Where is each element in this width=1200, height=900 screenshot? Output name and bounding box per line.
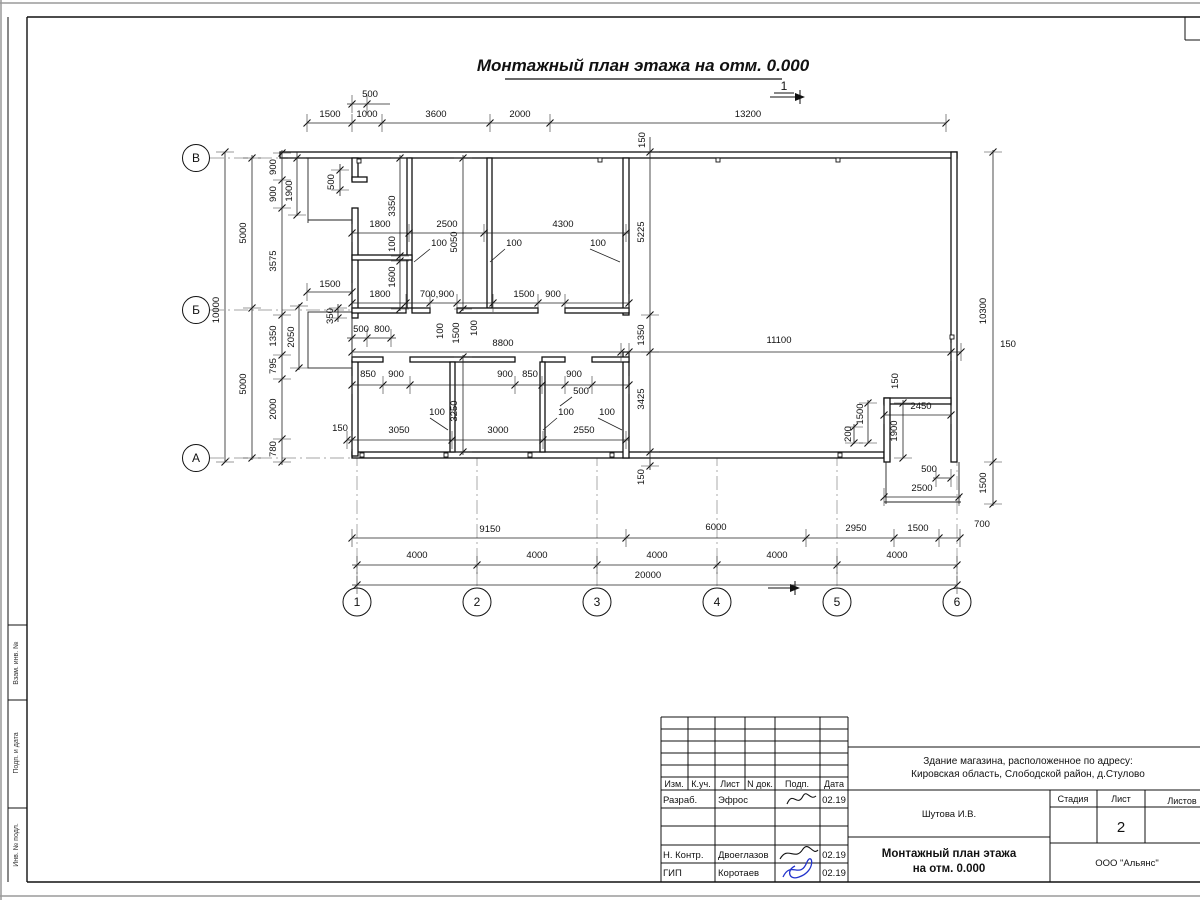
- signature: [780, 847, 818, 859]
- dimension-label: 1500: [513, 289, 534, 300]
- dimension-label: 1800: [369, 289, 390, 300]
- tb-name: Двоеглазов: [718, 850, 769, 861]
- tb-date: 02.19: [822, 795, 846, 806]
- tb-sheets-label: Листов: [1167, 796, 1196, 806]
- dimension-label: 100: [429, 407, 445, 418]
- dimension-label: 900: [268, 159, 279, 175]
- dimension-label: 150: [636, 469, 647, 485]
- dimension-label: 2500: [436, 219, 457, 230]
- dimension-label: 500: [326, 174, 337, 190]
- section-mark-label: 1: [781, 79, 788, 93]
- dimension-label: 5225: [636, 221, 647, 242]
- dimension-label: 1500: [319, 109, 340, 120]
- wall-right: [951, 152, 957, 462]
- dimension-label: 100: [469, 320, 480, 336]
- dimension-label: 150: [637, 132, 648, 148]
- dimension-label: 3575: [268, 250, 279, 271]
- dimension-label: 2000: [509, 109, 530, 120]
- wall-rooms-top: [592, 357, 629, 362]
- dimension-label: 100: [506, 238, 522, 249]
- page-title: Монтажный план этажа на отм. 0.000: [477, 56, 810, 75]
- title-block: Изм. К.уч. Лист N док. Подп. Дата Разраб…: [661, 717, 1200, 882]
- tb-company: ООО "Альянс": [1095, 858, 1159, 869]
- axis-col-label: 5: [834, 595, 841, 609]
- dimension-label: 850: [360, 369, 376, 380]
- dimension-label: 4000: [766, 550, 787, 561]
- dimension-label: 1500: [319, 279, 340, 290]
- axis-col-label: 6: [954, 595, 961, 609]
- dimension-label: 795: [268, 358, 279, 374]
- dimension-label: 500: [353, 324, 369, 335]
- wall-bottom: [352, 452, 884, 458]
- tb-stage-label: Стадия: [1058, 794, 1089, 804]
- dimension-label: 1000: [356, 109, 377, 120]
- dimension-line: [590, 249, 620, 262]
- dimension-label: 100: [599, 407, 615, 418]
- dimension-label: 900: [268, 186, 279, 202]
- dimension-label: 900: [388, 369, 404, 380]
- axis-row-label: А: [192, 451, 200, 465]
- dimension-label: 4300: [552, 219, 573, 230]
- tb-sheet-label: Лист: [1111, 794, 1131, 804]
- dimension-label: 1500: [855, 403, 866, 424]
- dimension-label: 4000: [526, 550, 547, 561]
- dimension-ticks: [216, 95, 1002, 594]
- axis-col-label: 1: [354, 595, 361, 609]
- dimension-label: 3000: [487, 425, 508, 436]
- axis-col-label: 3: [594, 595, 601, 609]
- wall-stub: [352, 177, 367, 182]
- dimension-label: 100: [431, 238, 447, 249]
- tb-author: Шутова И.В.: [922, 809, 976, 820]
- dimension-label: 2550: [573, 425, 594, 436]
- dimension-label: 1500: [451, 322, 462, 343]
- dimension-label: 1900: [284, 180, 295, 201]
- side-column: Взам. инв. № Подп. и дата Инв. № подл.: [13, 641, 20, 866]
- wall-left: [352, 360, 358, 456]
- dimension-label: 1500: [907, 523, 928, 534]
- side-label: Инв. № подл.: [13, 823, 20, 867]
- tb-col-podp: Подп.: [785, 779, 809, 789]
- tb-name: Коротаев: [718, 868, 759, 879]
- signature: [787, 794, 816, 804]
- dimension-label: 11100: [766, 335, 791, 346]
- dimension-label: 4000: [406, 550, 427, 561]
- dimension-label: 3425: [636, 388, 647, 409]
- dimension-label: 900: [566, 369, 582, 380]
- tb-role: Н. Контр.: [663, 850, 703, 861]
- dimension-label: 6000: [705, 522, 726, 533]
- tb-col-izm: Изм.: [664, 779, 683, 789]
- dimension-label: 1600: [387, 266, 398, 287]
- dimension-labels: 5001500100036002000132001501000050005000…: [211, 89, 1016, 581]
- wall-rooms-top: [542, 357, 565, 362]
- dimension-label: 200: [843, 426, 854, 442]
- dimension-label: 500: [362, 89, 378, 100]
- tb-role: Разраб.: [663, 795, 697, 806]
- tb-project-line1: Здание магазина, расположенное по адресу…: [923, 756, 1133, 767]
- side-label: Взам. инв. №: [13, 641, 20, 684]
- dimension-line: [414, 249, 430, 262]
- tb-name: Эфрос: [718, 795, 748, 806]
- axis-row-label: В: [192, 151, 200, 165]
- drawing-frame: [8, 17, 1200, 882]
- tb-date: 02.19: [822, 850, 846, 861]
- dimension-label: 2000: [268, 398, 279, 419]
- dimension-label: 1350: [636, 324, 647, 345]
- dimension-label: 5000: [238, 222, 249, 243]
- tb-drawing-title-line2: на отм. 0.000: [913, 863, 986, 875]
- dimension-label: 20000: [635, 570, 661, 581]
- dimension-label: 3250: [449, 400, 460, 421]
- dimension-label: 1350: [268, 325, 279, 346]
- dimension-label: 150: [1000, 339, 1016, 350]
- dimension-label: 1800: [369, 219, 390, 230]
- dimension-label: 3350: [387, 195, 398, 216]
- dimension-label: 9150: [479, 524, 500, 535]
- dimension-label: 900: [497, 369, 513, 380]
- axis-row-label: Б: [192, 303, 200, 317]
- dimension-label: 3050: [388, 425, 409, 436]
- dimension-label: 10300: [978, 298, 989, 324]
- wall-corridor: [565, 308, 629, 313]
- dimension-label: 500: [573, 386, 589, 397]
- tb-col-kuch: К.уч.: [691, 779, 710, 789]
- dimension-label: 4000: [646, 550, 667, 561]
- dimension-label: 500: [921, 464, 937, 475]
- dimension-label: 700: [974, 519, 990, 530]
- dimension-label: 5000: [238, 373, 249, 394]
- axis-col-label: 2: [474, 595, 481, 609]
- dimension-label: 1500: [978, 472, 989, 493]
- tb-col-ndok: N док.: [747, 779, 773, 789]
- dimension-label: 2500: [911, 483, 932, 494]
- dimension-label: 5050: [449, 231, 460, 252]
- dimension-label: 850: [522, 369, 538, 380]
- dimension-label: 2950: [845, 523, 866, 534]
- dimension-label: 4000: [886, 550, 907, 561]
- dimension-label: 100: [435, 323, 446, 339]
- dimension-label: 8800: [492, 338, 513, 349]
- drawing-sheet: Взам. инв. № Подп. и дата Инв. № подл. М…: [0, 0, 1200, 900]
- axis-col-label: 4: [714, 595, 721, 609]
- tb-date: 02.19: [822, 868, 846, 879]
- dimension-line: [560, 397, 572, 406]
- dimension-line: [598, 418, 622, 430]
- section-mark-top: 1: [770, 79, 805, 104]
- dimension-label: 2050: [286, 326, 297, 347]
- dimension-label: 100: [387, 236, 398, 252]
- dimension-lines: [225, 104, 993, 585]
- dimension-label: 13200: [735, 109, 761, 120]
- wall-corridor: [412, 308, 430, 313]
- tb-drawing-title-line1: Монтажный план этажа: [882, 848, 1017, 860]
- dimension-label: 350: [325, 308, 336, 324]
- tb-role: ГИП: [663, 868, 682, 879]
- axis-bubble-labels: В Б А 1 2 3 4 5 6: [192, 151, 961, 609]
- signature-blue: [783, 859, 812, 878]
- dimension-label: 800: [374, 324, 390, 335]
- tb-col-list: Лист: [720, 779, 740, 789]
- dimension-label: 10000: [211, 297, 222, 323]
- wall-rooms-top: [352, 357, 383, 362]
- tb-col-data: Дата: [824, 779, 844, 789]
- tb-project-line2: Кировская область, Слободской район, д.С…: [911, 768, 1145, 780]
- wall-top: [280, 152, 957, 158]
- dimension-label: 150: [890, 373, 901, 389]
- dimension-label: 700,900: [420, 289, 454, 300]
- dimension-label: 900: [545, 289, 561, 300]
- section-mark-bottom: [768, 581, 800, 595]
- dimension-label: 3600: [425, 109, 446, 120]
- dimension-label: 150: [332, 423, 348, 434]
- dimension-label: 2450: [910, 401, 931, 412]
- dimension-label: 1900: [889, 420, 900, 441]
- floor-plan-drawing: Взам. инв. № Подп. и дата Инв. № подл. М…: [0, 0, 1200, 900]
- dimension-label: 780: [268, 441, 279, 457]
- dimension-label: 100: [558, 407, 574, 418]
- side-label: Подп. и дата: [13, 732, 20, 773]
- dimension-line: [430, 418, 448, 430]
- dimension-label: 100: [590, 238, 606, 249]
- tb-sheet-number: 2: [1117, 819, 1125, 836]
